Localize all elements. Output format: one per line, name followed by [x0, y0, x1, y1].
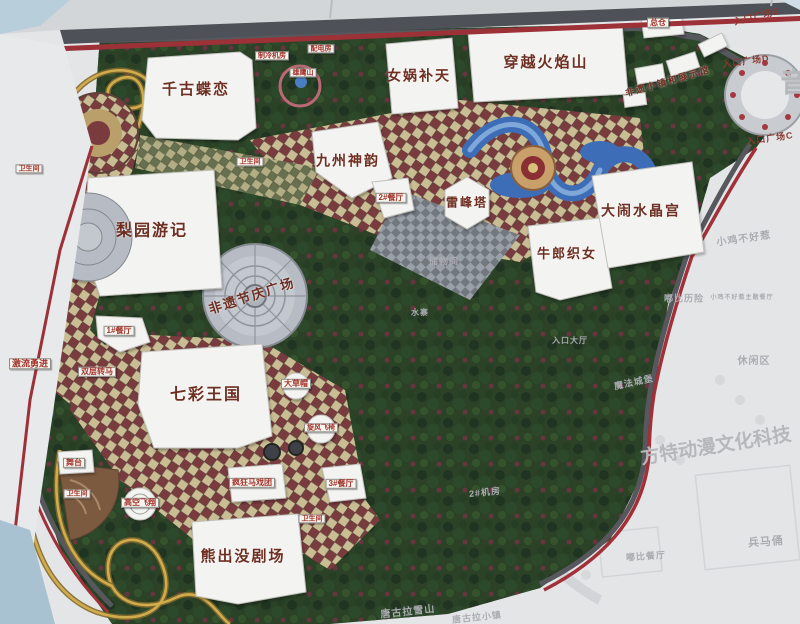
building-huoyanshan — [468, 24, 628, 102]
building-shuijinggong — [592, 162, 704, 268]
building-qicaiwangguo — [138, 344, 272, 448]
building-niulangzhinv — [528, 218, 612, 300]
building-xuanfengfeiyi — [307, 415, 335, 443]
building-gaokongfeixiang — [124, 488, 156, 520]
building-qiangudielian — [142, 52, 256, 140]
fountain-plaza — [511, 146, 555, 190]
building-xiongchumo — [192, 514, 306, 604]
entrance-plaza — [725, 55, 800, 135]
building-wutai — [58, 450, 94, 474]
flower-garden-plaza — [280, 66, 320, 106]
building-nvwabutian — [386, 38, 458, 114]
park-map-svg — [0, 0, 800, 624]
building-maxituan — [228, 464, 286, 502]
park-map-photo: 千古蝶恋女娲补天穿越火焰山九州神韵梨园游记雷峰塔牛郎织女大闹水晶宫七彩王国熊出没… — [0, 0, 800, 624]
building-canting3 — [322, 464, 366, 502]
building-dacaomao — [283, 373, 309, 399]
